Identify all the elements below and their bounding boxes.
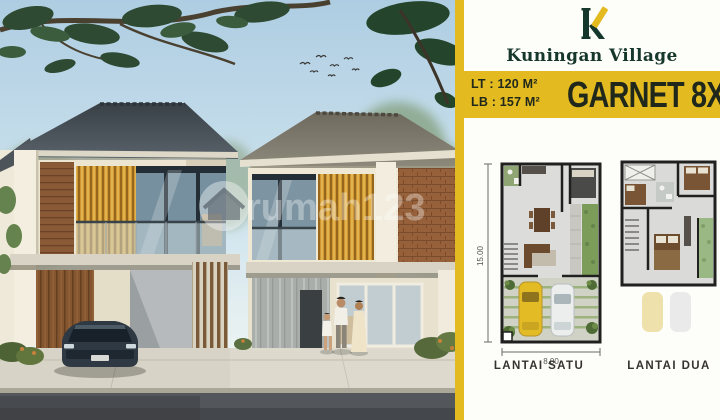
floorplan-lantai-satu: 15.00 8.00 [474, 156, 604, 373]
plan2-ghost-cars [642, 292, 691, 332]
plan2-bed-2 [625, 184, 646, 205]
product-title: GARNET 8X15 [567, 71, 720, 118]
plan2-bed-master [654, 234, 680, 270]
plan1-depth-dimension [484, 164, 492, 342]
panel-divider [455, 0, 464, 420]
plan1-white-car [551, 284, 574, 336]
curb [0, 388, 455, 393]
wood-panel-left [40, 162, 74, 254]
photo-region: rumah123 [0, 0, 455, 420]
road [0, 393, 455, 420]
watermark: rumah123 [199, 181, 426, 231]
plan1-depth-label: 15.00 [476, 245, 485, 266]
floor-slab-right [246, 262, 455, 273]
window-right-ground [338, 284, 422, 346]
plan2-bed-1 [684, 166, 710, 190]
caption-lantai-dua: LANTAI DUA [614, 360, 720, 372]
entry-door-right [300, 290, 322, 350]
spec-lt: LT : 120 M² [471, 76, 540, 94]
brand-panel: Kuningan Village · · · · · · · · · · · ·… [464, 0, 720, 420]
spec-column: LT : 120 M² LB : 157 M² [471, 76, 540, 111]
floorplan-lantai-dua [614, 158, 720, 343]
watermark-text: rumah123 [246, 187, 426, 229]
house-render: rumah123 [0, 0, 455, 420]
brand-name: Kuningan Village [464, 46, 720, 66]
real-estate-flyer: rumah123 Kuningan Village · · · · · · · … [0, 0, 720, 420]
brand-k-icon [572, 5, 612, 43]
carport-gate-left [192, 262, 228, 348]
parked-car [54, 321, 146, 378]
spec-lb: LB : 157 M² [471, 94, 540, 112]
left-house-unit [0, 103, 240, 350]
spec-band: LT : 120 M² LB : 157 M² GARNET 8X15 [455, 71, 720, 118]
plan1-yellow-car [519, 282, 542, 336]
caption-lantai-satu: LANTAI SATU [474, 360, 604, 372]
balcony-railing-left [76, 222, 226, 254]
brand-logo: Kuningan Village · · · · · · · · · · · ·… [464, 5, 720, 75]
plan1-width-dimension [502, 348, 600, 356]
